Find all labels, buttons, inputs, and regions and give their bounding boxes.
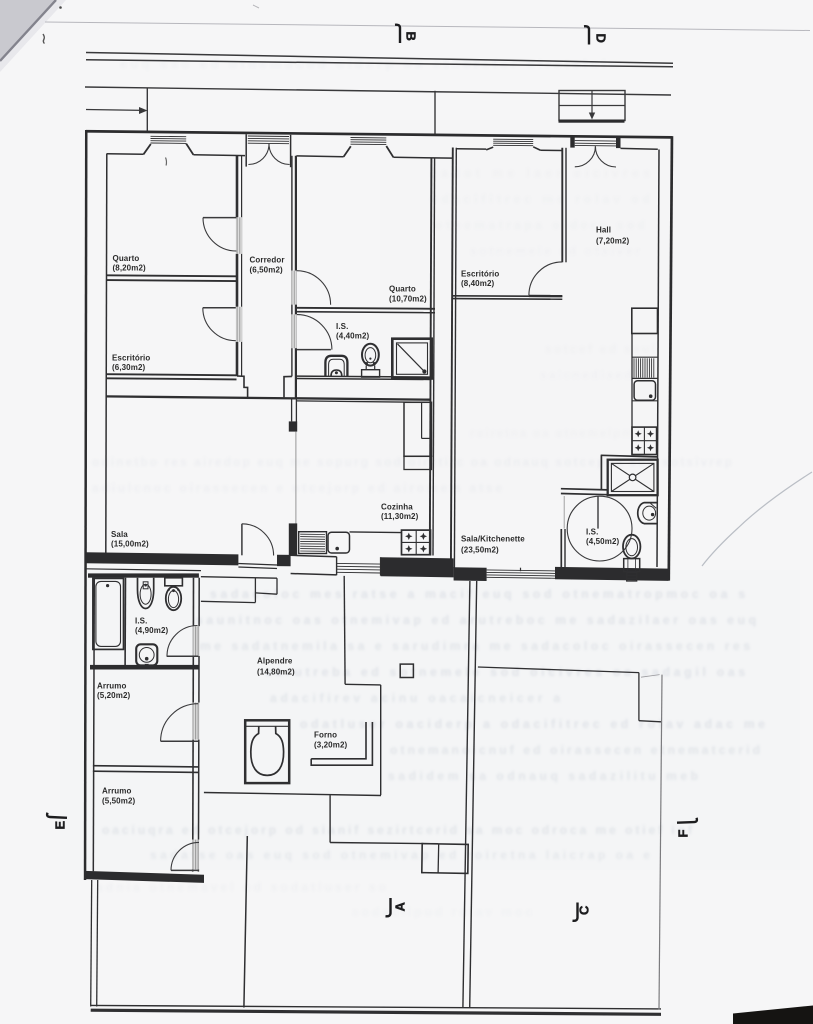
svg-text:oaciuqra ed otcejorp od sianif: oaciuqra ed otcejorp od sianif sezirtcer…: [102, 823, 693, 837]
svg-text:Escritório: Escritório: [112, 354, 150, 363]
svg-text:(5,20m2): (5,20m2): [97, 691, 130, 700]
svg-text:(10,70m2): (10,70m2): [389, 294, 427, 303]
svg-text:(4,90m2): (4,90m2): [135, 626, 168, 635]
svg-text:sadatse oas euq sod otnemivap: sadatse oas euq sod otnemivap ed roiretn…: [150, 848, 650, 862]
svg-text:(4,50m2): (4,50m2): [586, 537, 619, 546]
svg-text:(8,20m2): (8,20m2): [113, 264, 146, 273]
svg-text:(8,40m2): (8,40m2): [461, 279, 494, 288]
svg-text:Quarto: Quarto: [389, 285, 416, 294]
svg-text:sarutreba ed sotnemele sod oic: sarutreba ed sotnemele sod oicivres oa s…: [265, 665, 745, 679]
svg-text:(15,00m2): (15,00m2): [111, 540, 149, 549]
svg-text:Corredor: Corredor: [250, 256, 285, 265]
svg-text:adiulcnoc oirassecen e otcejor: adiulcnoc oirassecen e otcejorp ed airom…: [92, 481, 502, 495]
svg-text:(4,40m2): (4,40m2): [336, 332, 369, 341]
svg-text:(6,30m2): (6,30m2): [112, 363, 145, 372]
svg-text:Escritório: Escritório: [461, 270, 499, 279]
svg-text:Arrumo: Arrumo: [102, 787, 132, 796]
svg-text:Sala/Kitchenette: Sala/Kitchenette: [461, 535, 525, 544]
svg-text:Quarto: Quarto: [113, 254, 140, 263]
svg-text:Forno: Forno: [314, 731, 337, 740]
svg-text:I.S.: I.S.: [336, 322, 348, 331]
svg-text:Sala: Sala: [111, 530, 128, 539]
svg-text:adacifirev acinu oacaicneicer: adacifirev acinu oacaicneicer a: [270, 691, 560, 705]
svg-text:odatluser oaciderp a odacifitr: odatluser oaciderp a odacifitrec ed rola…: [300, 717, 765, 731]
svg-text:I.S.: I.S.: [135, 617, 147, 626]
svg-text:sodacilpud rolav moc: sodacilpud rolav moc: [352, 905, 532, 919]
svg-text:(3,20m2): (3,20m2): [314, 741, 347, 750]
svg-text:(11,30m2): (11,30m2): [381, 512, 419, 521]
svg-text:A: A: [393, 902, 408, 912]
svg-text:Alpendre: Alpendre: [257, 657, 293, 666]
svg-text:otnemanoicnuf ed oirassecen et: otnemanoicnuf ed oirassecen etnematcerid: [390, 743, 760, 757]
svg-text:D: D: [594, 34, 609, 43]
svg-text:B: B: [404, 32, 419, 41]
svg-text:C: C: [577, 905, 592, 915]
svg-text:Arrumo: Arrumo: [97, 682, 127, 691]
svg-text:(7,20m2): (7,20m2): [596, 237, 629, 246]
svg-text:F: F: [676, 830, 691, 838]
svg-text:(5,50m2): (5,50m2): [102, 796, 135, 805]
svg-text:E: E: [53, 821, 68, 830]
svg-text:Hall: Hall: [596, 226, 611, 235]
svg-text:I.S.: I.S.: [586, 528, 598, 537]
svg-text:(14,80m2): (14,80m2): [257, 668, 295, 677]
svg-text:roiretna oa otnemelpmoc: roiretna oa otnemelpmoc: [470, 426, 650, 440]
svg-text:euq sao ed otnemucod oiderp oa: euq sao ed otnemucod oiderp oa etnerefer…: [120, 57, 620, 71]
svg-text:(6,50m2): (6,50m2): [250, 265, 283, 274]
svg-text:(23,50m2): (23,50m2): [461, 546, 499, 555]
svg-text:Cozinha: Cozinha: [381, 503, 413, 512]
